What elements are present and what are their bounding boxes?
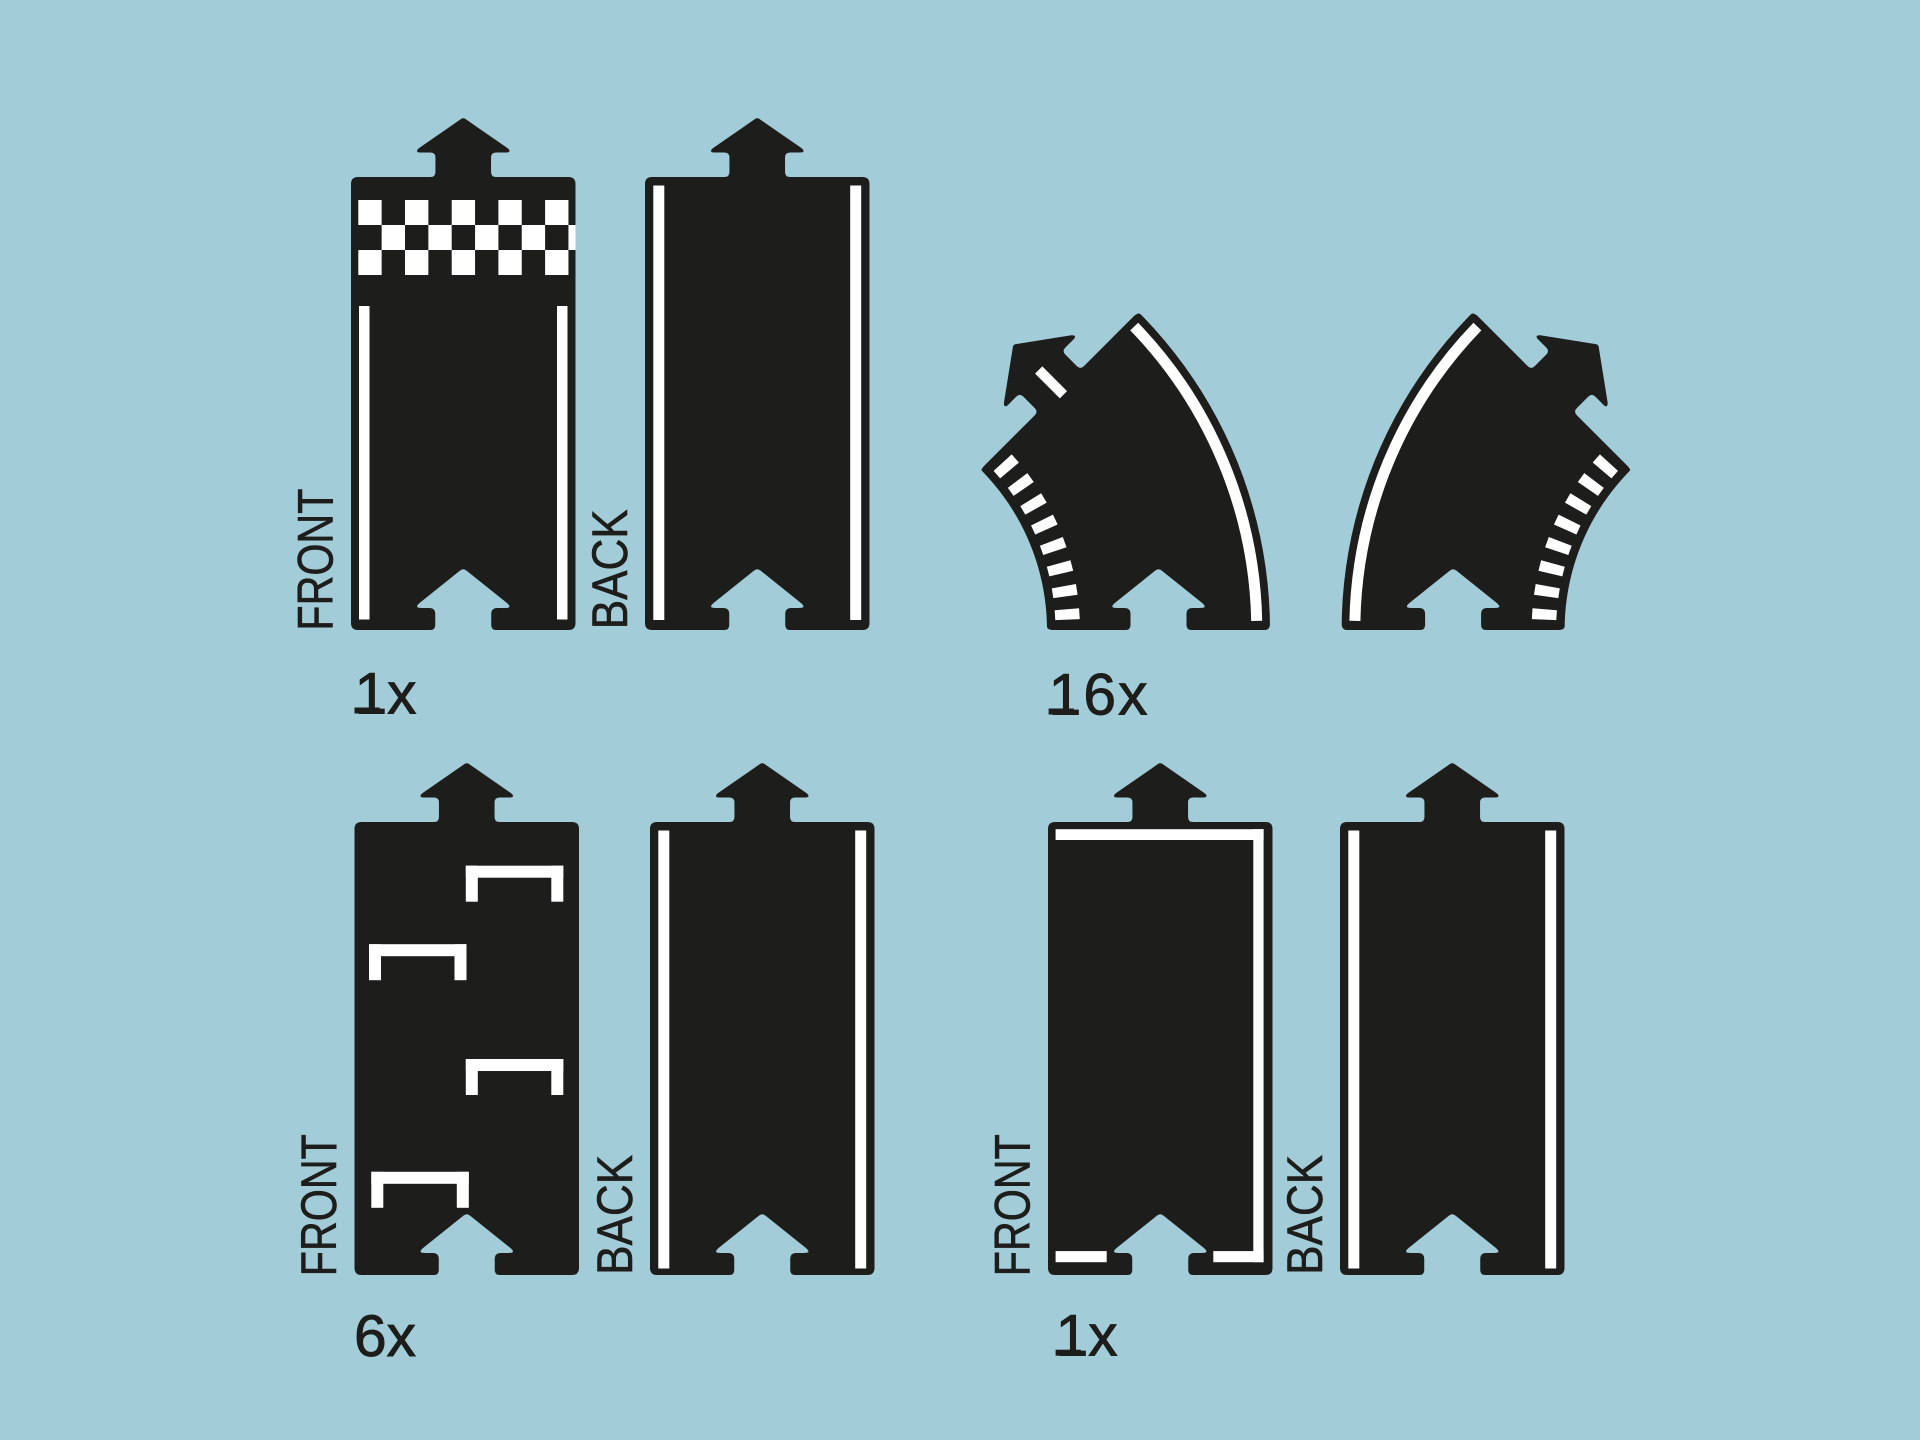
svg-text:BACK: BACK xyxy=(587,1155,643,1275)
svg-text:BACK: BACK xyxy=(1277,1155,1333,1275)
svg-text:FRONT: FRONT xyxy=(288,489,344,631)
svg-text:1x: 1x xyxy=(1056,1304,1118,1369)
svg-text:6x: 6x xyxy=(354,1304,416,1369)
svg-text:16x: 16x xyxy=(1049,663,1150,728)
svg-text:FRONT: FRONT xyxy=(985,1134,1041,1276)
svg-text:1x: 1x xyxy=(355,661,417,726)
svg-text:FRONT: FRONT xyxy=(291,1134,347,1276)
svg-text:BACK: BACK xyxy=(582,509,638,629)
